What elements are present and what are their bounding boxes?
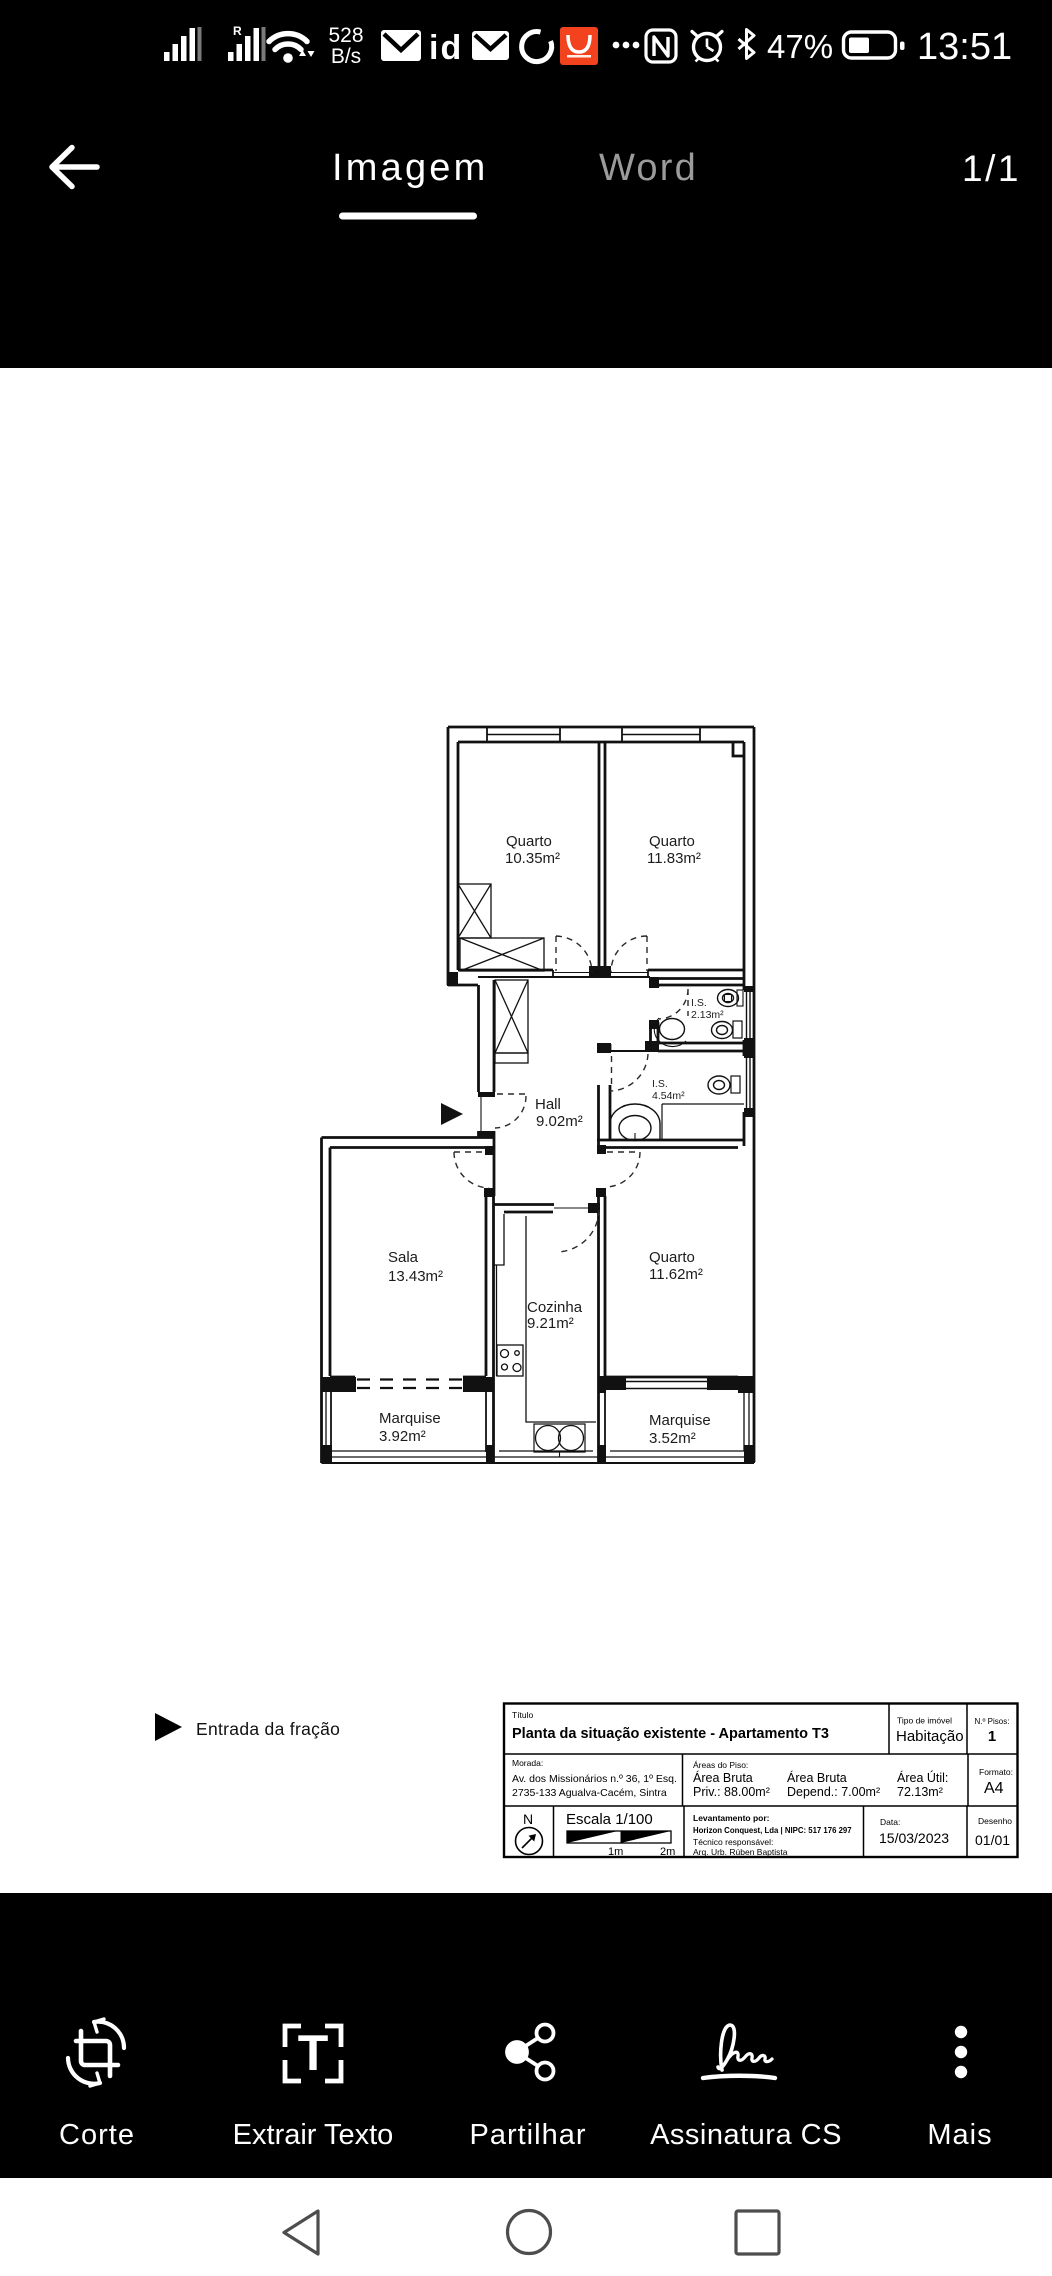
svg-text:Corte: Corte <box>59 2119 135 2151</box>
svg-text:2735-133 Agualva-Cacém, Sintra: 2735-133 Agualva-Cacém, Sintra <box>512 1787 667 1799</box>
svg-text:Quarto: Quarto <box>649 833 695 850</box>
svg-text:Extrair Texto: Extrair Texto <box>233 2119 394 2151</box>
svg-text:B/s: B/s <box>331 45 361 68</box>
svg-text:9.21m²: 9.21m² <box>527 1315 574 1332</box>
svg-text:Depend.: 7.00m²: Depend.: 7.00m² <box>787 1785 880 1799</box>
svg-text:Data:: Data: <box>880 1817 900 1827</box>
svg-text:13.43m²: 13.43m² <box>388 1268 443 1285</box>
svg-text:Quarto: Quarto <box>649 1249 695 1266</box>
svg-text:10.35m²: 10.35m² <box>505 850 560 867</box>
svg-text:13:51: 13:51 <box>917 26 1012 68</box>
svg-text:Quarto: Quarto <box>506 833 552 850</box>
svg-text:Marquise: Marquise <box>379 1410 441 1427</box>
svg-text:Área Útil:: Área Útil: <box>897 1770 948 1785</box>
svg-text:3.92m²: 3.92m² <box>379 1428 426 1445</box>
svg-text:Áreas do Piso:: Áreas do Piso: <box>693 1760 748 1770</box>
svg-text:1: 1 <box>988 1728 996 1745</box>
svg-text:Planta da situação existente -: Planta da situação existente - Apartamen… <box>512 1726 829 1742</box>
svg-text:Levantamento por:: Levantamento por: <box>693 1813 770 1823</box>
svg-text:Sala: Sala <box>388 1249 419 1266</box>
svg-text:3.52m²: 3.52m² <box>649 1430 696 1447</box>
svg-text:Marquise: Marquise <box>649 1412 711 1429</box>
svg-text:Área Bruta: Área Bruta <box>787 1770 847 1785</box>
svg-text:4.54m²: 4.54m² <box>652 1090 685 1102</box>
svg-text:Imagem: Imagem <box>332 147 488 189</box>
svg-text:Hall: Hall <box>535 1096 561 1113</box>
svg-text:2m: 2m <box>660 1846 675 1858</box>
svg-text:15/03/2023: 15/03/2023 <box>879 1830 949 1846</box>
svg-text:Av. dos Missionários n.º 36, 1: Av. dos Missionários n.º 36, 1º Esq. <box>512 1773 677 1785</box>
svg-text:Formato:: Formato: <box>979 1767 1013 1777</box>
svg-text:Assinatura CS: Assinatura CS <box>650 2119 842 2151</box>
svg-text:A4: A4 <box>984 1780 1004 1797</box>
svg-text:N: N <box>523 1811 533 1827</box>
svg-text:9.02m²: 9.02m² <box>536 1113 583 1130</box>
svg-text:Técnico responsável:: Técnico responsável: <box>693 1837 773 1847</box>
svg-text:11.62m²: 11.62m² <box>649 1266 703 1283</box>
svg-text:2.13m²: 2.13m² <box>691 1009 724 1021</box>
svg-text:Cozinha: Cozinha <box>527 1299 583 1316</box>
svg-text:I.S.: I.S. <box>691 997 707 1009</box>
svg-text:N.º Pisos:: N.º Pisos: <box>975 1717 1010 1726</box>
svg-text:I.S.: I.S. <box>652 1078 668 1090</box>
svg-text:Título: Título <box>512 1710 534 1720</box>
svg-text:Mais: Mais <box>927 2119 992 2151</box>
svg-text:01/01: 01/01 <box>975 1832 1010 1848</box>
svg-text:Tipo de imóvel: Tipo de imóvel <box>897 1716 952 1726</box>
svg-text:Priv.: 88.00m²: Priv.: 88.00m² <box>693 1785 770 1799</box>
svg-text:1/1: 1/1 <box>962 148 1021 189</box>
svg-text:Entrada da fração: Entrada da fração <box>196 1719 340 1739</box>
svg-text:Desenho: Desenho <box>978 1816 1012 1826</box>
svg-text:id: id <box>429 29 463 67</box>
svg-text:47%: 47% <box>767 28 833 65</box>
svg-text:Horizon Conquest, Lda | NIPC:: Horizon Conquest, Lda | NIPC: 517 176 29… <box>693 1826 852 1835</box>
svg-text:72.13m²: 72.13m² <box>897 1785 943 1799</box>
svg-text:Arq. Urb. Rúben Baptista: Arq. Urb. Rúben Baptista <box>693 1847 788 1857</box>
svg-text:528: 528 <box>328 24 363 47</box>
svg-text:Morada:: Morada: <box>512 1758 543 1768</box>
svg-text:11.83m²: 11.83m² <box>647 850 701 867</box>
svg-text:T: T <box>298 2025 329 2081</box>
svg-text:Habitação: Habitação <box>896 1728 964 1745</box>
svg-text:1m: 1m <box>608 1846 623 1858</box>
svg-text:Word: Word <box>599 147 698 189</box>
svg-text:Área Bruta: Área Bruta <box>693 1770 753 1785</box>
svg-text:Escala 1/100: Escala 1/100 <box>566 1811 653 1828</box>
svg-text:Partilhar: Partilhar <box>470 2119 587 2151</box>
svg-text:R: R <box>233 24 242 38</box>
